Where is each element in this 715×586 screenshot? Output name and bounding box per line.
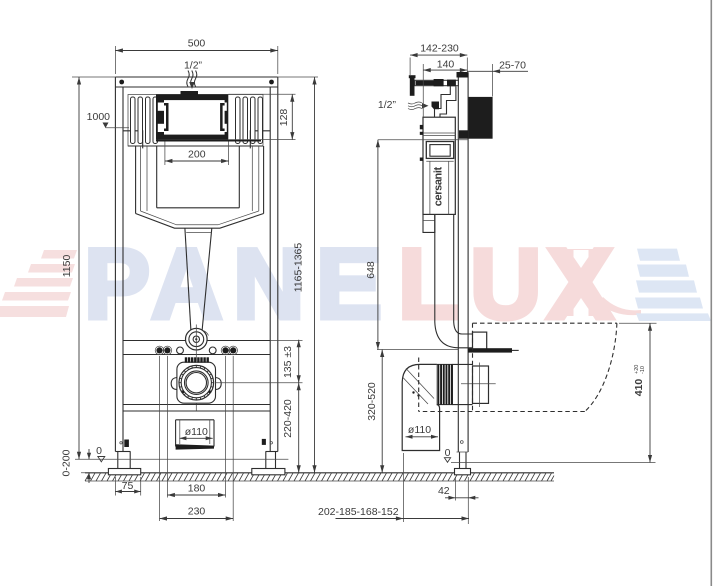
svg-text:200: 200 <box>188 149 206 161</box>
svg-text:ø110: ø110 <box>185 426 208 438</box>
svg-text:128: 128 <box>278 109 290 127</box>
svg-text:1000: 1000 <box>87 111 111 123</box>
svg-text:L: L <box>398 228 458 339</box>
svg-text:0: 0 <box>96 445 102 457</box>
svg-text:75: 75 <box>122 480 134 492</box>
svg-text:E: E <box>316 228 382 339</box>
svg-text:-10: -10 <box>640 366 646 374</box>
svg-text:135 ±3: 135 ±3 <box>282 346 294 378</box>
svg-text:0-200: 0-200 <box>61 449 73 476</box>
svg-text:cersanit: cersanit <box>433 166 445 206</box>
svg-text:0: 0 <box>445 447 451 459</box>
svg-text:1165-1365: 1165-1365 <box>293 243 305 293</box>
svg-text:A: A <box>151 228 223 339</box>
svg-text:1/2”: 1/2” <box>184 60 203 72</box>
svg-text:1/2”: 1/2” <box>378 99 397 111</box>
svg-text:ø110: ø110 <box>408 424 431 436</box>
svg-text:42: 42 <box>438 485 450 497</box>
svg-text:202-185-168-152: 202-185-168-152 <box>318 506 399 518</box>
svg-text:140: 140 <box>437 58 455 70</box>
svg-text:180: 180 <box>188 483 206 495</box>
svg-text:P: P <box>84 228 150 339</box>
svg-text:25-70: 25-70 <box>499 60 526 72</box>
svg-text:X: X <box>547 228 613 339</box>
svg-text:U: U <box>470 228 542 339</box>
svg-text:1150: 1150 <box>61 255 73 278</box>
svg-text:410: 410 <box>633 379 645 397</box>
svg-text:230: 230 <box>188 506 206 518</box>
svg-text:320-520: 320-520 <box>366 382 378 421</box>
svg-text:220-420: 220-420 <box>282 399 294 438</box>
svg-text:648: 648 <box>365 261 377 279</box>
svg-text:500: 500 <box>188 38 206 50</box>
svg-text:142-230: 142-230 <box>420 43 459 55</box>
